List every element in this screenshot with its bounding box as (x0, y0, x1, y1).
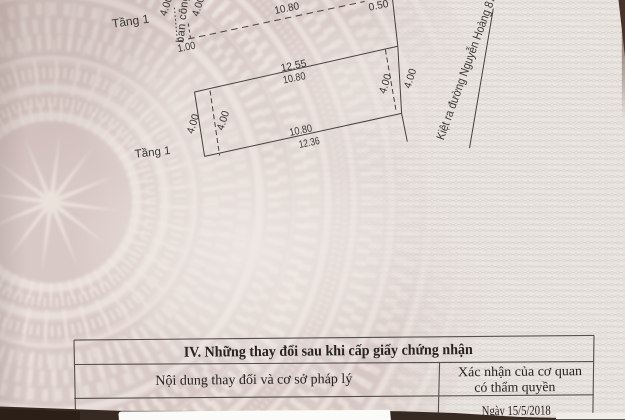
svg-text:Xác nhận của cơ quan: Xác nhận của cơ quan (458, 363, 582, 379)
svg-text:IV. Những thay đổi sau khi cấp: IV. Những thay đổi sau khi cấp giấy chứn… (184, 342, 474, 361)
svg-text:có thẩm quyền: có thẩm quyền (474, 379, 555, 395)
svg-text:Nội dung thay đổi và cơ sở phá: Nội dung thay đổi và cơ sở pháp lý (155, 372, 352, 389)
